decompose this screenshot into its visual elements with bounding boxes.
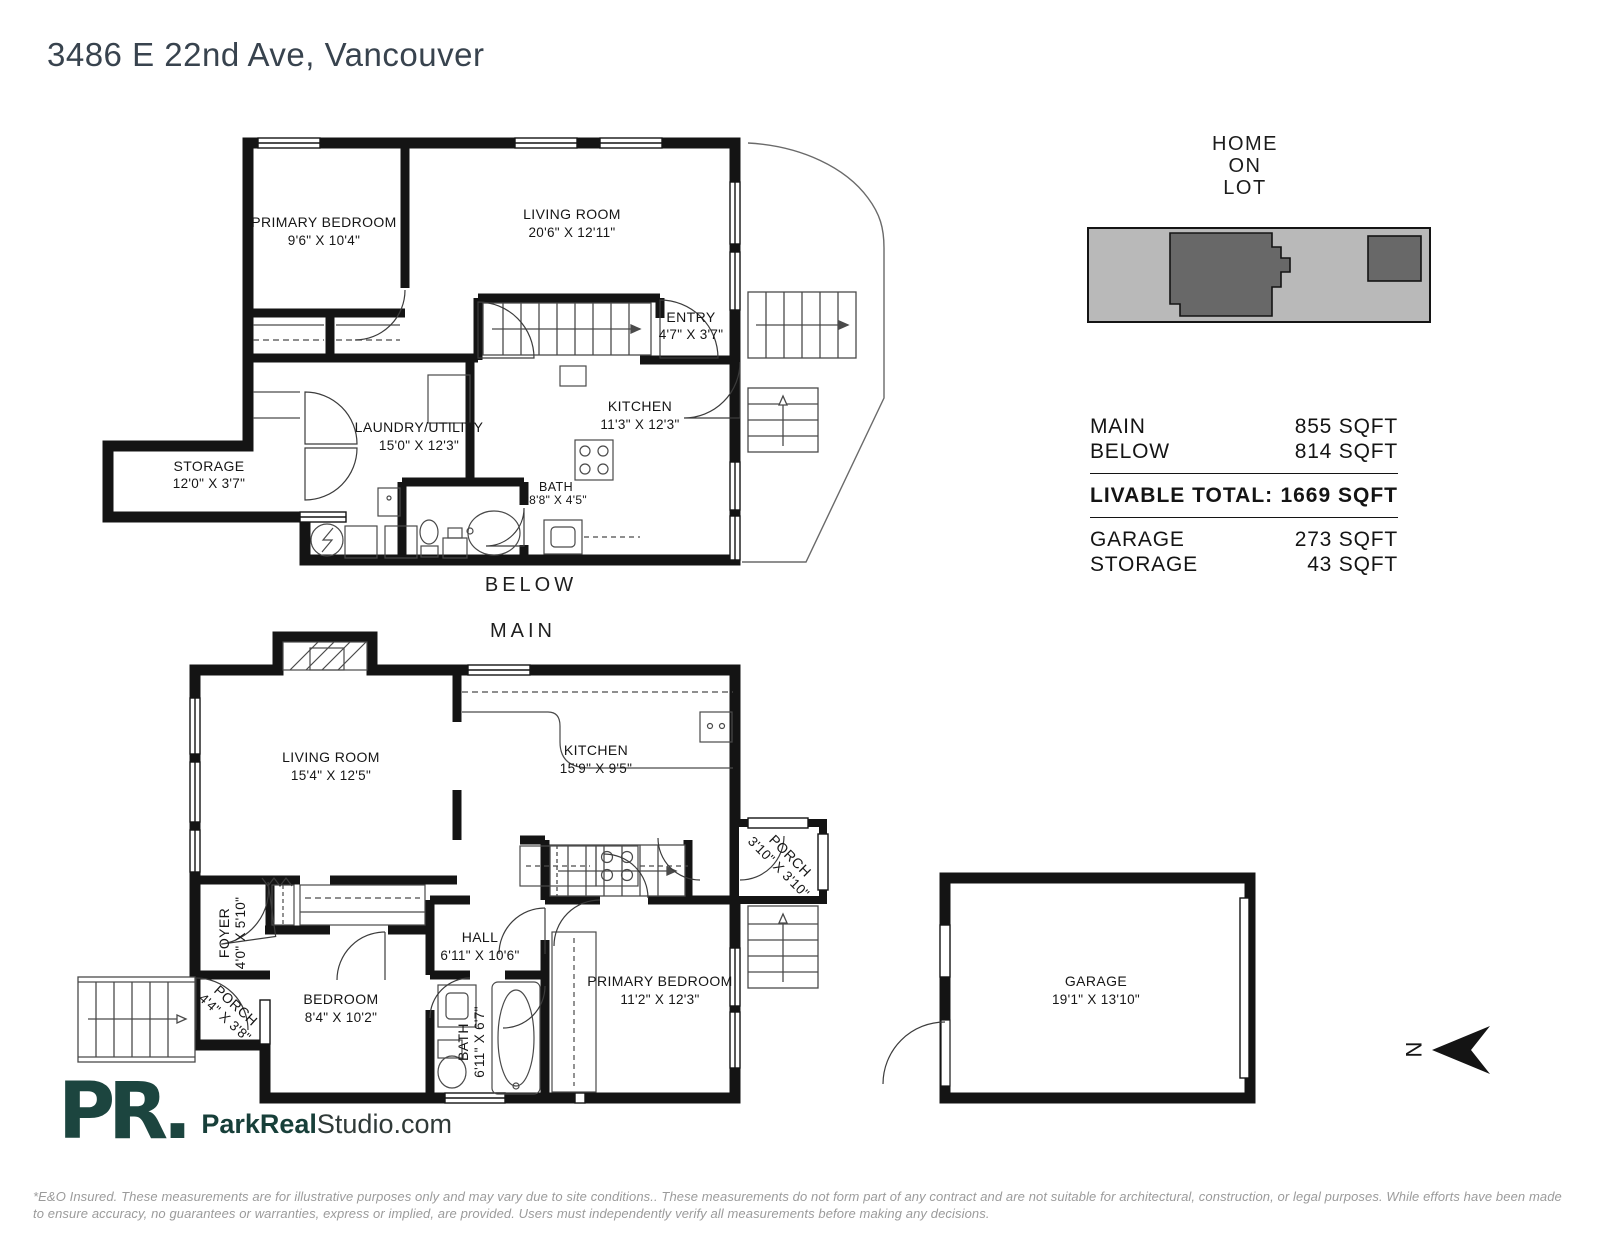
svg-text:15'9" X 9'5": 15'9" X 9'5" (560, 761, 632, 776)
area-value: 43 SQFT (1307, 553, 1398, 576)
garage-door (1240, 898, 1249, 1078)
svg-text:6'11" X 6'7": 6'11" X 6'7" (472, 1006, 487, 1077)
floorplan-sheet: { "page": { "title": "3486 E 22nd Ave, V… (0, 0, 1600, 1237)
svg-text:KITCHEN: KITCHEN (564, 742, 628, 758)
svg-text:LIVING ROOM: LIVING ROOM (523, 206, 621, 222)
svg-text:BATH: BATH (539, 480, 573, 494)
lot-title-line1: HOME (1212, 133, 1278, 155)
area-row-total: LIVABLE TOTAL: 1669 SQFT (1090, 483, 1398, 508)
home-on-lot: HOME ON LOT (1088, 133, 1430, 322)
north-arrow: N (1401, 1026, 1490, 1074)
area-row-below: BELOW 814 SQFT (1090, 439, 1398, 464)
area-value: 855 SQFT (1295, 415, 1398, 438)
svg-text:HALL: HALL (462, 929, 499, 945)
below-stairs-exterior (748, 292, 856, 452)
main-stairs-front (78, 977, 195, 1062)
svg-text:12'0" X 3'7": 12'0" X 3'7" (173, 476, 245, 491)
north-arrow-icon (1432, 1026, 1490, 1074)
svg-text:FOYER: FOYER (216, 908, 232, 958)
parkreal-site-rest: Studio.com (317, 1109, 452, 1139)
parkreal-site-text: ParkRealStudio.com (201, 1109, 452, 1140)
parkreal-site-bold: ParkReal (201, 1109, 317, 1139)
lot-house-footprint (1170, 233, 1290, 316)
lot-title-line3: LOT (1223, 177, 1266, 199)
garage-plan: GARAGE 19'1" X 13'10" (883, 878, 1250, 1098)
parkreal-logo: PR. ParkRealStudio.com (58, 1080, 452, 1144)
svg-text:STORAGE: STORAGE (173, 458, 244, 474)
svg-text:GARAGE: GARAGE (1065, 973, 1127, 989)
area-value: 273 SQFT (1295, 528, 1398, 551)
svg-text:9'6" X 10'4": 9'6" X 10'4" (288, 233, 360, 248)
svg-text:20'6" X 12'11": 20'6" X 12'11" (529, 225, 616, 240)
area-total-label: LIVABLE TOTAL: (1090, 484, 1273, 507)
svg-text:19'1" X 13'10": 19'1" X 13'10" (1052, 992, 1140, 1007)
svg-text:LAUNDRY/UTILITY: LAUNDRY/UTILITY (355, 419, 484, 435)
svg-text:15'0" X 12'3": 15'0" X 12'3" (379, 438, 459, 453)
svg-text:11'2" X 12'3": 11'2" X 12'3" (620, 992, 699, 1007)
area-row-garage: GARAGE 273 SQFT (1090, 527, 1398, 552)
areas-divider-top (1090, 473, 1398, 474)
area-label: MAIN (1090, 415, 1146, 438)
main-chimney (283, 642, 367, 670)
area-row-main: MAIN 855 SQFT (1090, 414, 1398, 439)
area-value: 814 SQFT (1295, 440, 1398, 463)
areas-table: MAIN 855 SQFT BELOW 814 SQFT LIVABLE TOT… (1090, 414, 1398, 577)
svg-text:8'4" X 10'2": 8'4" X 10'2" (305, 1010, 377, 1025)
disclaimer-text: *E&O Insured. These measurements are for… (33, 1188, 1570, 1222)
below-floor-tag: BELOW (485, 574, 577, 596)
lot-title-line2: ON (1229, 155, 1262, 177)
svg-text:ENTRY: ENTRY (666, 309, 715, 325)
svg-text:BEDROOM: BEDROOM (303, 991, 378, 1007)
svg-text:PRIMARY BEDROOM: PRIMARY BEDROOM (587, 973, 733, 989)
svg-text:LIVING ROOM: LIVING ROOM (282, 749, 380, 765)
svg-text:6'11" X 10'6": 6'11" X 10'6" (440, 948, 519, 963)
floorplan-graphics: PRIMARY BEDROOM 9'6" X 10'4" LIVING ROOM… (0, 0, 1600, 1237)
svg-text:KITCHEN: KITCHEN (608, 398, 672, 414)
svg-text:4'7" X 3'7": 4'7" X 3'7" (659, 327, 724, 342)
area-label: BELOW (1090, 440, 1170, 463)
area-label: STORAGE (1090, 553, 1198, 576)
parkreal-logo-mark: PR. (58, 1080, 185, 1144)
area-label: GARAGE (1090, 528, 1185, 551)
lot-garage-footprint (1368, 236, 1421, 281)
main-stairs-interior (550, 845, 685, 896)
area-row-storage: STORAGE 43 SQFT (1090, 552, 1398, 577)
below-floor-plan: PRIMARY BEDROOM 9'6" X 10'4" LIVING ROOM… (108, 138, 884, 596)
area-total-value: 1669 SQFT (1280, 484, 1398, 507)
svg-text:BATH: BATH (455, 1023, 471, 1061)
main-floor-plan: MAIN (78, 620, 828, 1103)
svg-text:PRIMARY BEDROOM: PRIMARY BEDROOM (251, 214, 397, 230)
svg-text:8'8" X 4'5": 8'8" X 4'5" (529, 493, 587, 507)
svg-text:4'0" X 5'10": 4'0" X 5'10" (233, 897, 248, 969)
north-label: N (1401, 1042, 1426, 1059)
garage-window (940, 925, 950, 977)
svg-text:11'3" X 12'3": 11'3" X 12'3" (600, 417, 679, 432)
svg-text:15'4" X 12'5": 15'4" X 12'5" (291, 768, 371, 783)
main-floor-tag: MAIN (490, 620, 556, 642)
areas-divider-bottom (1090, 517, 1398, 518)
